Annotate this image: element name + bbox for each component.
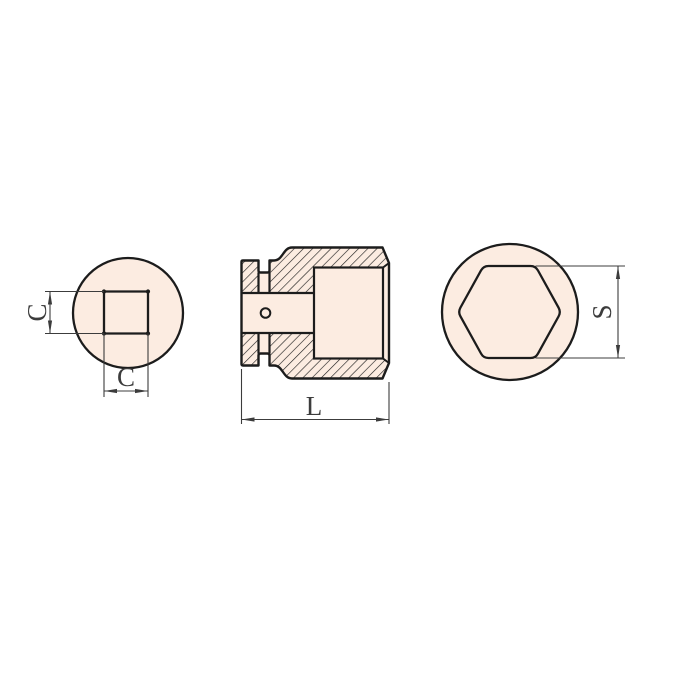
drawing-page: C C L S: [0, 0, 700, 700]
corner-relief-dot: [146, 289, 150, 293]
dim-label-c-side: C: [22, 303, 52, 321]
section-view: L: [242, 248, 390, 425]
hex-socket-view: S: [442, 244, 625, 380]
pin-hole: [261, 308, 271, 318]
technical-drawing-canvas: C C L S: [0, 0, 700, 700]
dim-label-l: L: [306, 391, 323, 421]
square-drive-hole: [104, 292, 148, 334]
square-drive-view: C C: [22, 258, 183, 397]
dim-label-s: S: [587, 304, 617, 319]
dim-label-c-width: C: [117, 362, 135, 392]
